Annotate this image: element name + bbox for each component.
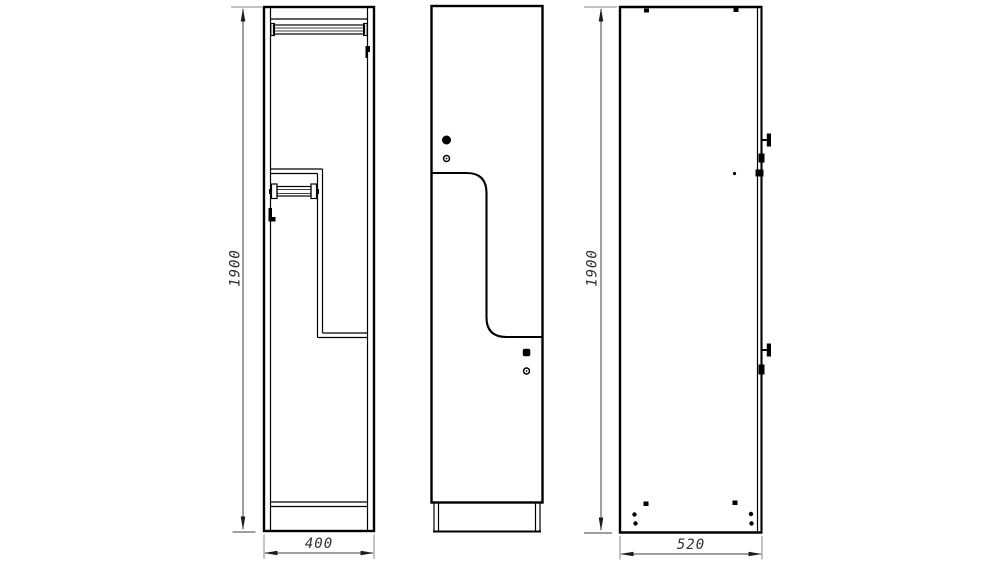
- rail-end-bracket: [364, 24, 368, 36]
- screw-mark: [734, 8, 739, 12]
- arrowhead-right: [749, 552, 763, 556]
- arrowhead-up: [599, 8, 604, 22]
- dimension-front-height: 1900: [228, 7, 263, 532]
- z-locker-drawing: 1900 400 1900 520: [0, 0, 1000, 565]
- coat-hook-left: [269, 208, 276, 222]
- lock-cylinder: [523, 349, 531, 357]
- arrowhead-right: [361, 551, 375, 555]
- dimension-side-height: 1900: [584, 7, 617, 533]
- lower-hanger-rail: [269, 184, 319, 199]
- cabinet-outer-frame: [264, 7, 374, 531]
- hinge-knuckle: [767, 134, 771, 147]
- top-hanger-rail: [271, 24, 367, 36]
- dimension-side-depth: 520: [620, 536, 762, 560]
- arrowhead-left: [620, 552, 634, 556]
- dimension-front-width-label: 400: [305, 536, 333, 552]
- door-seam-mark: [756, 170, 764, 177]
- foot-adjuster-dot: [633, 521, 637, 525]
- lower-hinge: [759, 344, 772, 375]
- dimension-front-height-label: 1900: [228, 249, 244, 287]
- hinge-plate: [759, 365, 765, 375]
- rail-end-bracket: [271, 24, 275, 36]
- dimension-side-height-label: 1900: [585, 249, 601, 287]
- z-door-split-seam: [432, 173, 543, 337]
- dimension-side-depth-label: 520: [677, 537, 705, 553]
- front-door-view: [432, 6, 543, 532]
- upper-door-lock: [442, 136, 451, 162]
- screw-dot: [733, 172, 736, 175]
- screw-mark: [644, 502, 649, 507]
- lock-cylinder: [442, 136, 451, 145]
- screw-mark: [644, 9, 649, 13]
- arrowhead-down: [241, 517, 246, 531]
- side-view: [619, 6, 771, 534]
- rail-end-bracket: [272, 184, 278, 199]
- foot-adjuster-dot: [749, 512, 753, 516]
- hinge-plate: [759, 154, 765, 163]
- arrowhead-up: [241, 8, 246, 22]
- arrowhead-left: [264, 551, 278, 555]
- hinge-knuckle: [767, 344, 771, 357]
- technical-drawing-canvas: 1900 400 1900 520: [0, 0, 1000, 565]
- foot-adjuster-dot: [632, 512, 636, 516]
- dimension-front-width: 400: [264, 535, 374, 560]
- rail-end-bracket: [311, 184, 317, 199]
- foot-adjuster-dot: [749, 521, 753, 525]
- front-section-view: [264, 7, 374, 531]
- plinth-base: [433, 503, 541, 532]
- lower-door-lock: [523, 349, 531, 374]
- screw-mark: [733, 501, 738, 506]
- arrowhead-down: [599, 518, 604, 532]
- upper-hinge: [759, 134, 772, 163]
